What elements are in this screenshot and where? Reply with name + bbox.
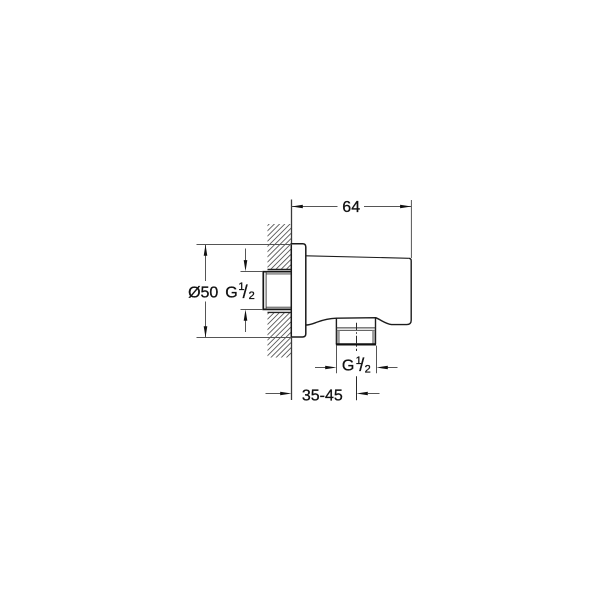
svg-text:35-45: 35-45 — [302, 387, 343, 404]
svg-text:2: 2 — [365, 364, 371, 376]
svg-text:G: G — [342, 358, 354, 375]
svg-text:Ø50: Ø50 — [188, 284, 218, 301]
svg-text:/: / — [243, 282, 248, 302]
svg-text:64: 64 — [342, 199, 360, 216]
svg-text:2: 2 — [249, 290, 255, 302]
svg-text:G: G — [225, 284, 237, 301]
svg-text:/: / — [359, 355, 364, 375]
